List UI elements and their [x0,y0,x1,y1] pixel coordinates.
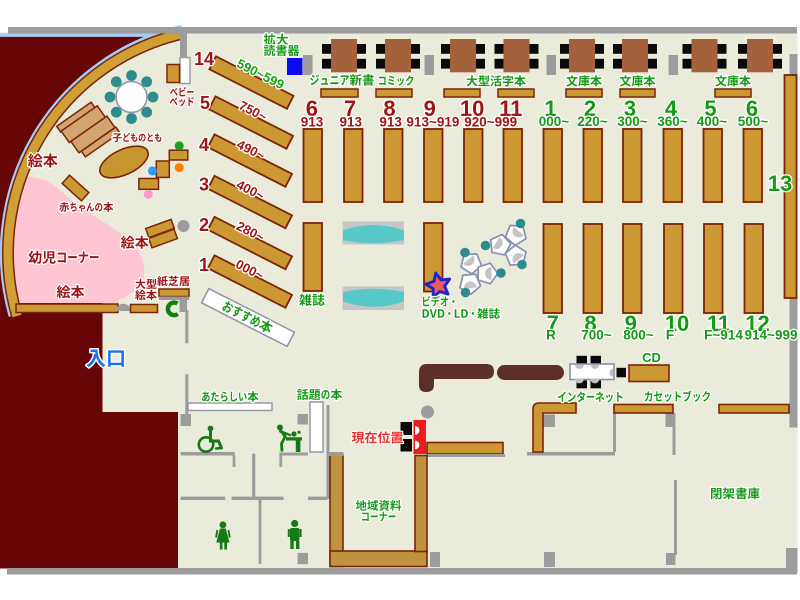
svg-text:14: 14 [194,49,214,69]
svg-text:4: 4 [199,135,209,155]
svg-text:400~: 400~ [697,114,728,129]
svg-text:913: 913 [340,115,363,130]
svg-text:2: 2 [199,215,209,235]
svg-text:913: 913 [301,115,324,130]
svg-text:F: F [666,328,674,343]
svg-text:F~914: F~914 [704,328,743,343]
svg-text:300~: 300~ [617,114,648,129]
svg-text:913~919: 913~919 [406,115,459,130]
svg-text:CD: CD [642,350,661,365]
svg-text:13: 13 [768,171,792,196]
svg-text:3: 3 [199,174,209,194]
svg-text:913: 913 [379,115,402,130]
svg-text:220~: 220~ [577,114,608,129]
svg-text:920~999: 920~999 [464,115,517,130]
svg-text:000~: 000~ [539,114,570,129]
svg-text:800~: 800~ [623,328,654,343]
svg-text:500~: 500~ [738,114,769,129]
svg-text:1: 1 [199,255,209,275]
svg-text:R: R [546,328,556,343]
svg-text:914~999: 914~999 [745,328,798,343]
svg-text:5: 5 [200,93,210,113]
svg-text:700~: 700~ [581,328,612,343]
svg-text:360~: 360~ [657,114,688,129]
